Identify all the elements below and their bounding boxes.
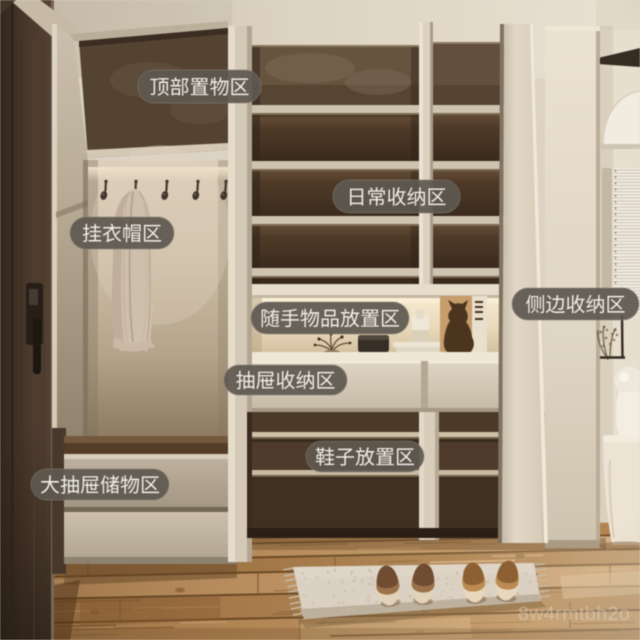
svg-text:8w4rmtbh2o: 8w4rmtbh2o	[518, 603, 630, 625]
